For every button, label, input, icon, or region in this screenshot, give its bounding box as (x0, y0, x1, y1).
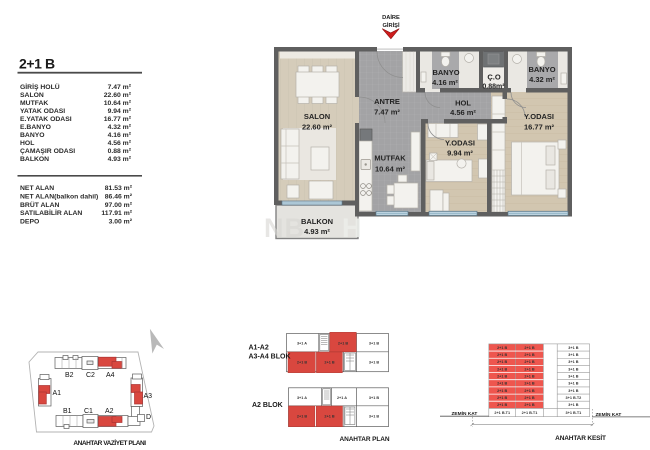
svg-text:9.94 m²: 9.94 m² (108, 108, 132, 115)
svg-text:0.88 m²: 0.88 m² (108, 148, 132, 155)
svg-text:10.64 m²: 10.64 m² (104, 100, 132, 107)
svg-text:3+1 B: 3+1 B (369, 361, 379, 365)
svg-text:3+1 B: 3+1 B (568, 389, 578, 393)
svg-text:117.91 m²: 117.91 m² (101, 210, 132, 217)
svg-text:2+1 B.T1: 2+1 B.T1 (522, 411, 538, 415)
svg-text:16.77 m²: 16.77 m² (524, 123, 555, 132)
svg-text:3+1 B: 3+1 B (568, 346, 578, 350)
svg-text:4.16 m²: 4.16 m² (108, 132, 132, 139)
svg-text:3+1 B: 3+1 B (369, 342, 379, 346)
svg-text:2+1 B: 2+1 B (497, 360, 507, 364)
svg-text:4.93 m²: 4.93 m² (304, 227, 330, 236)
svg-text:ANAHTAR KESİT: ANAHTAR KESİT (555, 434, 606, 442)
svg-text:ANAHTAR VAZİYET PLANI: ANAHTAR VAZİYET PLANI (73, 439, 146, 447)
svg-text:HOL: HOL (20, 140, 34, 147)
svg-text:2+1 B.T1: 2+1 B.T1 (494, 411, 510, 415)
svg-text:2+1 B: 2+1 B (497, 382, 507, 386)
svg-text:2+1 B: 2+1 B (497, 403, 507, 407)
svg-text:A2 BLOK: A2 BLOK (252, 402, 283, 409)
svg-text:4.56 m²: 4.56 m² (108, 140, 132, 147)
svg-text:2+1 B: 2+1 B (19, 56, 55, 72)
svg-text:2+1 B: 2+1 B (524, 389, 534, 393)
svg-text:2+1 B: 2+1 B (497, 396, 507, 400)
svg-text:3+1 B.T2: 3+1 B.T2 (566, 396, 582, 400)
svg-text:ANTRE: ANTRE (374, 97, 400, 106)
svg-text:3.00 m²: 3.00 m² (109, 219, 133, 226)
svg-text:2+1 B: 2+1 B (524, 367, 534, 371)
svg-text:D: D (146, 414, 151, 421)
svg-text:BRÜT ALAN: BRÜT ALAN (20, 200, 59, 209)
svg-text:3+1 B: 3+1 B (568, 382, 578, 386)
svg-text:2+1 B: 2+1 B (524, 382, 534, 386)
svg-text:22.60 m²: 22.60 m² (302, 123, 333, 132)
svg-text:BANYO: BANYO (20, 132, 45, 139)
svg-text:B2: B2 (65, 372, 74, 379)
svg-text:SALON: SALON (20, 92, 44, 99)
svg-text:BALKON: BALKON (301, 217, 333, 226)
svg-text:2+1 B: 2+1 B (324, 415, 334, 419)
svg-text:9.94 m²: 9.94 m² (447, 149, 473, 158)
svg-text:3+1 B: 3+1 B (369, 415, 379, 419)
svg-text:A2: A2 (105, 408, 114, 415)
svg-text:ANAHTAR PLAN: ANAHTAR PLAN (340, 436, 390, 443)
svg-text:NET ALAN(balkon dahil): NET ALAN(balkon dahil) (20, 193, 98, 200)
svg-text:E.BANYO: E.BANYO (20, 124, 51, 131)
svg-text:Y.ODASI: Y.ODASI (524, 112, 554, 121)
svg-text:DAİRE: DAİRE (382, 14, 400, 21)
svg-text:2+1 B: 2+1 B (524, 360, 534, 364)
svg-text:97.00 m²: 97.00 m² (105, 202, 133, 209)
svg-text:22.60 m²: 22.60 m² (104, 92, 132, 99)
svg-text:2+1 B: 2+1 B (297, 361, 307, 365)
svg-text:BANYO: BANYO (528, 65, 555, 74)
svg-text:C2: C2 (86, 372, 95, 379)
svg-text:YATAK ODASI: YATAK ODASI (20, 108, 65, 115)
svg-text:3+1 B: 3+1 B (568, 403, 578, 407)
svg-text:GİRİŞ HOLÜ: GİRİŞ HOLÜ (20, 82, 60, 91)
svg-text:4.16 m²: 4.16 m² (432, 78, 458, 87)
svg-text:ÇAMAŞIR ODASI: ÇAMAŞIR ODASI (20, 148, 75, 155)
svg-text:86.46 m²: 86.46 m² (105, 193, 133, 200)
svg-text:A3: A3 (144, 393, 153, 400)
svg-text:BALKON: BALKON (20, 156, 49, 163)
svg-text:Ç.O: Ç.O (487, 73, 501, 82)
svg-text:2+1 B: 2+1 B (497, 346, 507, 350)
svg-text:0.88m²: 0.88m² (482, 84, 505, 91)
svg-text:2+1 B: 2+1 B (338, 342, 348, 346)
svg-text:2+1 B: 2+1 B (497, 375, 507, 379)
svg-text:2+1 B: 2+1 B (297, 415, 307, 419)
svg-text:A1-A2: A1-A2 (249, 345, 269, 352)
svg-text:2+1 A: 2+1 A (337, 396, 347, 400)
svg-text:NET ALAN: NET ALAN (20, 185, 54, 192)
svg-text:A1: A1 (53, 390, 62, 397)
svg-text:BANYO: BANYO (432, 68, 459, 77)
svg-text:A4: A4 (106, 372, 115, 379)
svg-text:3+1 B: 3+1 B (568, 360, 578, 364)
svg-text:2+1 B: 2+1 B (524, 375, 534, 379)
svg-text:2+1 B: 2+1 B (524, 403, 534, 407)
svg-text:Y.ODASI: Y.ODASI (445, 139, 475, 148)
svg-text:A3-A4 BLOK: A3-A4 BLOK (249, 354, 291, 361)
svg-text:2+1 B: 2+1 B (324, 361, 334, 365)
svg-text:2+1 B: 2+1 B (524, 353, 534, 357)
svg-text:GİRİŞİ: GİRİŞİ (382, 22, 399, 29)
svg-text:2+1 B: 2+1 B (497, 389, 507, 393)
svg-text:SALON: SALON (304, 112, 330, 121)
svg-text:3+1 B.T1: 3+1 B.T1 (566, 411, 582, 415)
svg-text:3+1 B: 3+1 B (568, 367, 578, 371)
svg-text:7.47 m²: 7.47 m² (108, 84, 132, 91)
svg-text:4.93 m²: 4.93 m² (108, 156, 132, 163)
svg-text:3+1 B: 3+1 B (369, 396, 379, 400)
svg-text:10.64 m²: 10.64 m² (375, 165, 406, 174)
svg-text:3+1 B: 3+1 B (568, 375, 578, 379)
svg-text:B1: B1 (63, 408, 72, 415)
svg-text:4.32 m²: 4.32 m² (108, 124, 132, 131)
svg-text:2+1 B: 2+1 B (524, 346, 534, 350)
svg-text:H: H (342, 213, 362, 243)
svg-text:4.56 m²: 4.56 m² (450, 108, 476, 117)
svg-text:2+1 B: 2+1 B (497, 367, 507, 371)
svg-text:3+1 A: 3+1 A (297, 342, 307, 346)
svg-text:2+1 B: 2+1 B (497, 353, 507, 357)
svg-text:NB: NB (264, 213, 305, 243)
svg-text:E.YATAK ODASI: E.YATAK ODASI (20, 116, 72, 123)
svg-text:C1: C1 (84, 408, 93, 415)
svg-text:HOL: HOL (455, 99, 471, 108)
svg-text:SATILABİLİR ALAN: SATILABİLİR ALAN (20, 209, 82, 217)
svg-text:MUTFAK: MUTFAK (374, 154, 406, 163)
svg-text:MUTFAK: MUTFAK (20, 100, 48, 107)
svg-text:DEPO: DEPO (20, 219, 39, 226)
svg-text:7.47 m²: 7.47 m² (374, 108, 400, 117)
svg-text:3+1 A: 3+1 A (297, 396, 307, 400)
svg-text:16.77 m²: 16.77 m² (104, 116, 132, 123)
svg-text:81.53 m²: 81.53 m² (105, 185, 133, 192)
svg-text:2+1 B: 2+1 B (524, 396, 534, 400)
svg-text:4.32 m²: 4.32 m² (529, 75, 555, 84)
svg-text:3+1 B: 3+1 B (568, 353, 578, 357)
